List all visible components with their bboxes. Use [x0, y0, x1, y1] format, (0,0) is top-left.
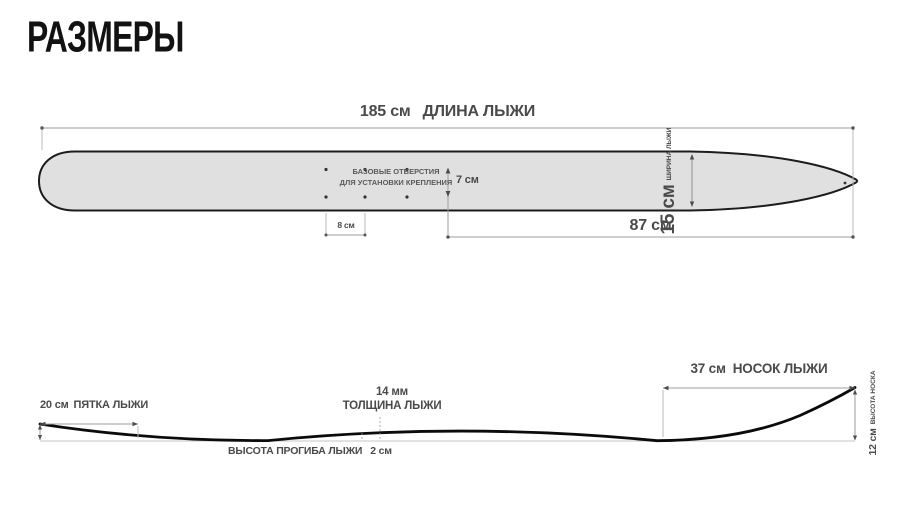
dimension-dot — [325, 234, 328, 237]
ski-width-caption: ШИРИНА ЛЫЖИ — [666, 128, 673, 181]
ski-length-label: 185 см ДЛИНА ЛЫЖИ — [42, 103, 853, 121]
hole-row-spacing-label: 7 см — [456, 174, 479, 186]
tip-value: 37 см — [690, 361, 725, 376]
arrowhead-right — [133, 422, 139, 426]
arrowhead-down — [853, 436, 857, 441]
dimension-dot — [851, 235, 854, 238]
hole-column-spacing-label: 8 см — [321, 220, 371, 230]
tip-height-caption: ВЫСОТА НОСКА — [870, 370, 877, 424]
thickness-label: 14 мм ТОЛЩИНА ЛЫЖИ — [312, 385, 472, 413]
thickness-caption: ТОЛЩИНА ЛЫЖИ — [312, 399, 472, 413]
arrowhead-up — [853, 390, 857, 395]
tip-height-label: 12 см ВЫСОТА НОСКА — [860, 378, 886, 448]
camber-value: 2 см — [370, 445, 392, 457]
tip-caption: НОСОК ЛЫЖИ — [733, 361, 828, 376]
tail-label: 20 см ПЯТКА ЛЫЖИ — [40, 399, 148, 411]
diagram-drawing — [0, 0, 900, 506]
ski-length-value: 185 см — [360, 103, 411, 121]
binding-holes-note-line1: БАЗОВЫЕ ОТВЕРСТИЯ — [330, 167, 462, 178]
dimension-dot — [851, 126, 854, 129]
thickness-value: 14 мм — [312, 385, 472, 399]
camber-caption: ВЫСОТА ПРОГИБА ЛЫЖИ — [228, 445, 362, 457]
binding-hole — [324, 195, 327, 198]
camber-label: ВЫСОТА ПРОГИБА ЛЫЖИ 2 см — [228, 445, 392, 457]
binding-holes-note: БАЗОВЫЕ ОТВЕРСТИЯ ДЛЯ УСТАНОВКИ КРЕПЛЕНИ… — [330, 167, 462, 188]
front-section-label: 87 см — [448, 217, 853, 235]
tip-hole — [844, 182, 847, 185]
tail-value: 20 см — [40, 399, 69, 411]
page-title: РАЗМЕРЫ — [27, 12, 184, 62]
binding-hole — [324, 168, 327, 171]
binding-hole — [363, 195, 366, 198]
binding-hole — [405, 195, 408, 198]
tail-caption: ПЯТКА ЛЫЖИ — [74, 399, 149, 411]
binding-holes-note-line2: ДЛЯ УСТАНОВКИ КРЕПЛЕНИЯ — [330, 178, 462, 189]
tip-label: 37 см НОСОК ЛЫЖИ — [663, 361, 855, 376]
arrowhead-left — [663, 386, 669, 390]
ski-length-caption: ДЛИНА ЛЫЖИ — [423, 103, 536, 121]
arrowhead-down — [38, 435, 42, 440]
dimension-dot — [40, 126, 43, 129]
ski-dimensions-diagram: РАЗМЕРЫ 185 см ДЛИНА ЛЫЖИ БАЗОВЫЕ ОТВЕРС… — [0, 0, 900, 506]
tip-height-value: 12 см — [867, 428, 879, 455]
dimension-dot — [364, 234, 367, 237]
